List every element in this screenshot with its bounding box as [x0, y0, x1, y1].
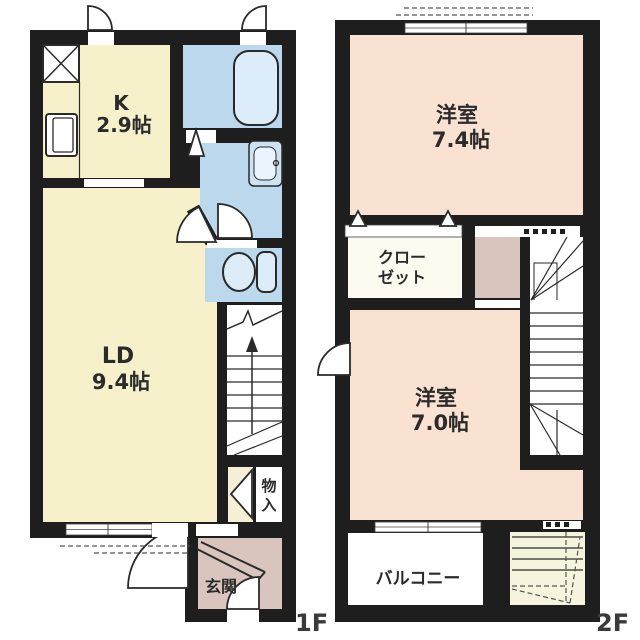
entrance-label: 玄関	[205, 577, 237, 596]
floorplan-svg: K 2.9帖 LD 9.4帖 玄関 物 入 1F	[0, 0, 640, 640]
floor-plan-2f: 洋室 7.4帖 クロー ゼット 洋室 7.0帖 バルコニー 2F	[318, 8, 629, 637]
kitchen-label: K	[113, 91, 130, 115]
toilet-icon	[223, 253, 255, 291]
bedroom70-door-swing-icon	[318, 343, 350, 375]
bedroom74-hall-opening	[475, 226, 520, 237]
kitchen-ld-opening	[84, 179, 144, 187]
entrance-ld-opening	[196, 524, 238, 536]
washbasin-bowl	[254, 147, 276, 180]
floorplan-image: K 2.9帖 LD 9.4帖 玄関 物 入 1F	[0, 0, 640, 640]
balcony-label: バルコニー	[376, 569, 461, 589]
floor-label-2f: 2F	[596, 609, 629, 637]
closet-label-line1: クロー	[378, 248, 426, 267]
bedroom74-label: 洋室	[436, 103, 478, 127]
front-door-gap	[227, 609, 259, 622]
bath-door-gap	[186, 130, 216, 143]
kitchen-top-door-gap	[88, 32, 114, 45]
floor-label-1f: 1F	[295, 609, 328, 637]
bedroom70-label: 洋室	[415, 386, 457, 410]
hall-bedroom70-opening	[475, 300, 520, 308]
bedroom70-area: 7.0帖	[411, 411, 469, 435]
living-dining-label: LD	[102, 344, 134, 369]
door-track-dash	[551, 229, 556, 234]
door-track-dash	[546, 522, 551, 527]
storage-label-char1: 物	[261, 477, 276, 495]
door-track-dash	[542, 229, 547, 234]
door-track-dash	[564, 522, 569, 527]
ld-exterior-door-gap	[152, 523, 188, 537]
kitchen-area: 2.9帖	[96, 113, 151, 137]
floor-plan-1f: K 2.9帖 LD 9.4帖 玄関 物 入 1F	[30, 6, 328, 637]
door-track-dash	[241, 525, 245, 530]
bathtub-icon	[234, 51, 278, 125]
closet-label-line2: ゼット	[378, 268, 426, 287]
storage-label-char2: 入	[261, 496, 276, 514]
bath-top-door-gap	[240, 32, 266, 45]
staircase-1f	[227, 305, 282, 455]
kitchen-top-door-swing-icon	[88, 6, 112, 30]
toilet-tank	[257, 252, 276, 292]
door-track-dash	[555, 522, 560, 527]
hall-2f	[475, 237, 520, 298]
bedroom74-area: 7.4帖	[432, 128, 490, 152]
door-track-dash	[533, 229, 538, 234]
door-track-dash	[524, 229, 529, 234]
door-track-dash	[560, 229, 565, 234]
bath-top-door-swing-icon	[242, 6, 266, 30]
living-dining-area: 9.4帖	[92, 370, 150, 394]
void-room	[510, 532, 585, 605]
door-track-dash	[248, 525, 252, 530]
